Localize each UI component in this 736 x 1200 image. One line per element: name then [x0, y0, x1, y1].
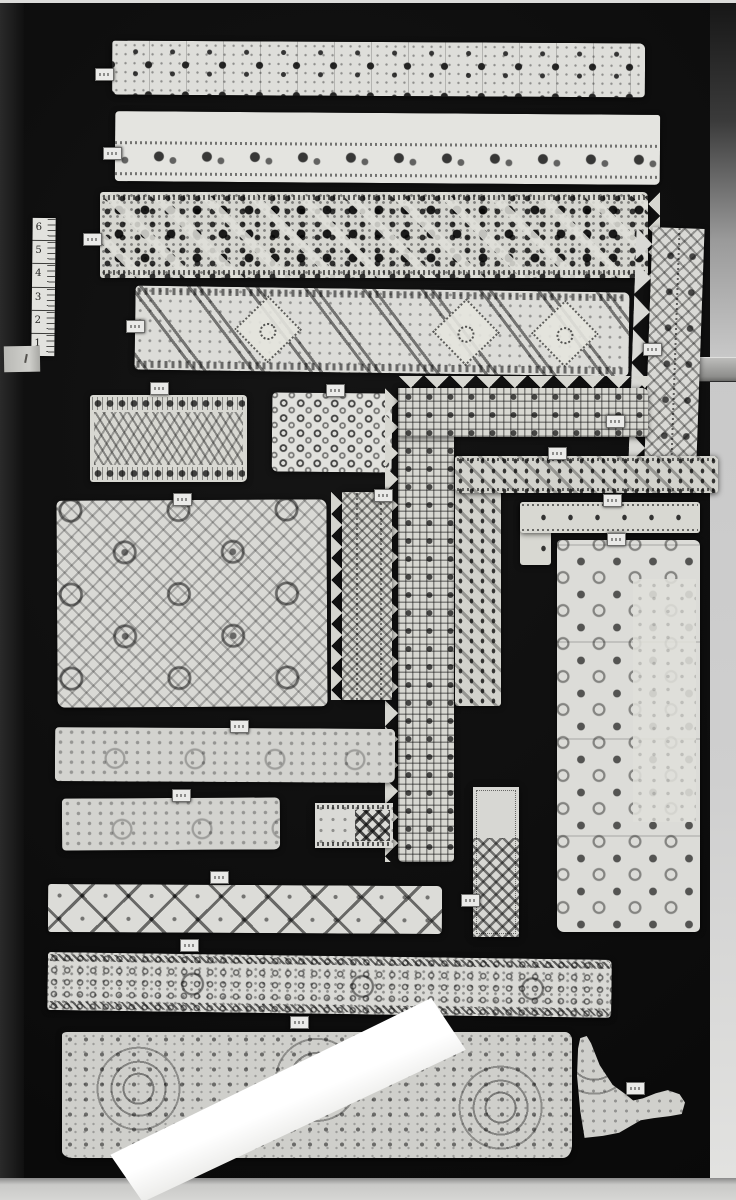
ruler-mark: 3: [32, 287, 55, 303]
lace-panel-meander: [90, 395, 247, 482]
ruler: 6 5 4 3 2 1: [31, 218, 55, 356]
ruler-cell: 5: [32, 240, 55, 263]
ruler-cell: 3: [32, 286, 55, 309]
lace-band-9: [47, 952, 612, 1018]
ruler-cell: 2: [32, 310, 55, 333]
ruler-mark: 6: [33, 218, 56, 234]
specimen-tag: [95, 68, 114, 81]
lace-band-6: [62, 797, 280, 850]
lace-corner-border-1-vertical: [398, 388, 454, 862]
diamond-medallion: [432, 298, 500, 366]
photo-bottom-edge: [0, 1178, 736, 1200]
diamond-medallion: [531, 300, 599, 368]
lace-band-1: [112, 41, 645, 98]
mounting-board: 6 5 4 3 2 1: [0, 0, 736, 1200]
scallop-edge: [331, 492, 342, 700]
lace-panel-eyelet: [272, 392, 393, 472]
specimen-tag: [126, 320, 145, 333]
specimen-tag: [643, 343, 662, 356]
meander-pattern: [94, 412, 243, 465]
lace-band-4: [134, 286, 629, 377]
lace-corner-border-1-horizontal: [398, 388, 648, 437]
ruler-mark: 4: [32, 264, 55, 280]
specimen-tag: [548, 447, 567, 460]
lace-band-2: [115, 111, 660, 185]
photo-top-edge: [0, 0, 736, 3]
specimen-tag: [150, 382, 169, 395]
lace-band-5: [55, 727, 395, 783]
diamond-medallion: [234, 295, 302, 363]
photo-left-edge: [0, 0, 24, 1200]
lace-strip-vertical-x: [473, 787, 519, 937]
specimen-tag: [180, 939, 199, 952]
ruler-cell: 4: [32, 263, 55, 286]
lace-corner-border-2-vertical: [455, 456, 501, 706]
lace-band-7: [315, 803, 393, 848]
lace-sampler-tall: [557, 540, 700, 932]
scallop-edge: [398, 376, 648, 388]
ruler-cell: 6: [32, 218, 55, 240]
specimen-tag: [83, 233, 102, 246]
board-clamp: [695, 357, 736, 382]
specimen-tag: [210, 871, 229, 884]
lace-edging-right: [643, 227, 704, 491]
specimen-tag: [374, 489, 393, 502]
lace-edging-middle: [342, 492, 392, 700]
specimen-tag: [326, 384, 345, 397]
specimen-tag: [103, 147, 122, 160]
specimen-tag: [606, 415, 625, 428]
ruler-mark: 5: [32, 241, 55, 257]
specimen-tag: [172, 789, 191, 802]
specimen-tag: [290, 1016, 309, 1029]
ruler-mark: 2: [32, 311, 55, 327]
specimen-tag: [626, 1082, 645, 1095]
specimen-tag: [230, 720, 249, 733]
specimen-tag: [603, 494, 622, 507]
specimen-tag: [607, 533, 626, 546]
specimen-tag: [173, 493, 192, 506]
tape-label: [4, 346, 40, 373]
lace-corner-border-2-horizontal: [455, 456, 718, 493]
specimen-tag: [461, 894, 480, 907]
lace-sampler-square: [56, 499, 327, 707]
photo-right-edge: [710, 0, 736, 1200]
lace-band-3: [100, 192, 648, 278]
cross-motifs: [355, 810, 390, 841]
lace-band-8: [48, 884, 442, 934]
